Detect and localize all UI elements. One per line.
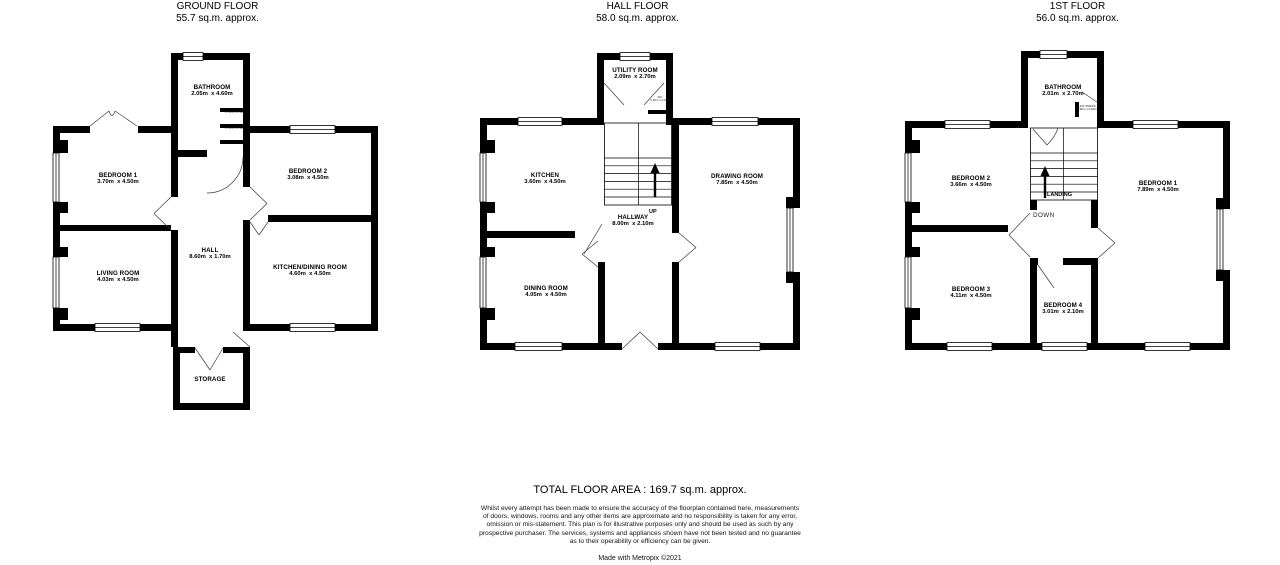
hall-floor-plan: UTILITY ROOM 2.09m x 2.70m KITCHEN 3.60m… xyxy=(465,45,810,365)
room-dims: 4.11m x 4.50m xyxy=(911,293,1031,300)
ground-floor-title-line: GROUND FLOOR xyxy=(45,1,390,13)
room-label-ground-bathroom: BATHROOM 2.05m x 4.60m xyxy=(152,84,272,98)
room-dims: 3.01m x 2.10m xyxy=(1003,309,1123,316)
closet-label-upper: 1.70m x 0.50m xyxy=(215,111,255,114)
room-label-hall-kitchen: KITCHEN 3.60m x 4.50m xyxy=(485,172,605,186)
stairs-up-label: UP xyxy=(649,209,657,215)
ground-walls xyxy=(53,53,378,410)
landing-label: LANDING xyxy=(1047,192,1072,198)
room-dims: 2.01m x 2.70m xyxy=(1003,91,1123,98)
room-name: KITCHEN/DINING ROOM xyxy=(250,264,370,271)
room-label-first-bedroom3: BEDROOM 3 4.11m x 4.50m xyxy=(911,286,1031,300)
room-dims: 4.60m x 4.50m xyxy=(250,271,370,278)
room-dims: 7.85m x 4.50m xyxy=(677,180,797,187)
first-floor-plan: BATHROOM 2.01m x 2.70m BEDROOM 2 3.66m x… xyxy=(895,45,1240,365)
floorplan-page: GROUND FLOOR 55.7 sq.m. approx. HALL FLO… xyxy=(0,0,1280,565)
room-label-hall-drawing: DRAWING ROOM 7.85m x 4.50m xyxy=(677,173,797,187)
room-dims: 2.09m x 2.70m xyxy=(575,74,695,81)
room-dims: 2.05m x 4.60m xyxy=(152,91,272,98)
room-name: BEDROOM 2 xyxy=(248,168,368,175)
room-name: STORAGE xyxy=(150,376,270,383)
room-dims: 3.66m x 4.50m xyxy=(911,182,1031,189)
room-label-first-bedroom4: BEDROOM 4 3.01m x 2.10m xyxy=(1003,302,1123,316)
ground-floor-plan: BATHROOM 2.05m x 4.60m BEDROOM 1 3.70m x… xyxy=(45,45,390,420)
first-staircase xyxy=(1031,128,1098,200)
first-floor-subtitle: 56.0 sq.m. approx. xyxy=(905,13,1250,25)
room-dims: 8.60m x 1.70m xyxy=(150,254,270,261)
room-label-first-bedroom1: BEDROOM 1 7.89m x 4.50m xyxy=(1098,180,1218,194)
disclaimer-text: Whilst every attempt has been made to en… xyxy=(420,505,860,546)
room-label-hall-hallway: HALLWAY 8.00m x 2.10m xyxy=(573,214,693,228)
hot-press-label: HOT PRESS 0.90m x 0.80m xyxy=(1067,105,1107,112)
hot-press-label-dims: 0.90m x 0.80m xyxy=(1067,108,1107,111)
room-name: BATHROOM xyxy=(152,84,272,91)
ground-floor-drawing xyxy=(45,45,390,420)
hall-staircase xyxy=(605,123,672,205)
room-label-first-bathroom: BATHROOM 2.01m x 2.70m xyxy=(1003,84,1123,98)
total-floor-area: TOTAL FLOOR AREA : 169.7 sq.m. approx. xyxy=(0,484,1280,496)
stairs-down-label: DOWN xyxy=(1033,212,1055,219)
room-label-hall-dining: DINING ROOM 4.05m x 4.50m xyxy=(486,285,606,299)
ground-floor-title: GROUND FLOOR 55.7 sq.m. approx. xyxy=(45,1,390,24)
room-dims: 7.89m x 4.50m xyxy=(1098,187,1218,194)
hall-windows xyxy=(480,53,793,351)
room-dims: 3.08m x 4.50m xyxy=(248,175,368,182)
first-floor-title-line: 1ST FLOOR xyxy=(905,1,1250,13)
first-floor-title: 1ST FLOOR 56.0 sq.m. approx. xyxy=(905,1,1250,24)
room-label-ground-storage: STORAGE xyxy=(150,376,270,383)
wc-label-dims: 1.30m x 0.90m xyxy=(640,99,680,102)
room-dims: 4.03m x 4.50m xyxy=(58,277,178,284)
room-name: HALLWAY xyxy=(573,214,693,221)
room-name: BEDROOM 4 xyxy=(1003,302,1123,309)
hall-floor-title: HALL FLOOR 58.0 sq.m. approx. xyxy=(465,1,810,24)
room-name: BEDROOM 2 xyxy=(911,175,1031,182)
room-name: UTILITY ROOM xyxy=(575,67,695,74)
room-label-ground-living: LIVING ROOM 4.03m x 4.50m xyxy=(58,270,178,284)
room-name: DINING ROOM xyxy=(486,285,606,292)
hall-floor-drawing xyxy=(465,45,810,365)
metropix-credit: Made with Metropix ©2021 xyxy=(0,555,1280,562)
room-name: KITCHEN xyxy=(485,172,605,179)
room-name: BEDROOM 3 xyxy=(911,286,1031,293)
room-dims: 3.60m x 4.50m xyxy=(485,179,605,186)
room-label-hall-utility: UTILITY ROOM 2.09m x 2.70m xyxy=(575,67,695,81)
room-label-ground-bedroom2: BEDROOM 2 3.08m x 4.50m xyxy=(248,168,368,182)
room-name: LIVING ROOM xyxy=(58,270,178,277)
room-dims: 4.05m x 4.50m xyxy=(486,292,606,299)
hall-floor-subtitle: 58.0 sq.m. approx. xyxy=(465,13,810,25)
room-label-first-bedroom2: BEDROOM 2 3.66m x 4.50m xyxy=(911,175,1031,189)
room-dims: 3.70m x 4.50m xyxy=(58,179,178,186)
room-label-ground-kitchen-dining: KITCHEN/DINING ROOM 4.60m x 4.50m xyxy=(250,264,370,278)
room-label-ground-hall: HALL 8.60m x 1.70m xyxy=(150,247,270,261)
room-name: BEDROOM 1 xyxy=(1098,180,1218,187)
wc-label: WC 1.30m x 0.90m xyxy=(640,96,680,103)
ground-floor-subtitle: 55.7 sq.m. approx. xyxy=(45,13,390,25)
hall-floor-title-line: HALL FLOOR xyxy=(465,1,810,13)
room-name: DRAWING ROOM xyxy=(677,173,797,180)
closet-label-lower: 1.70m x 0.50m xyxy=(215,127,255,130)
room-dims: 8.00m x 2.10m xyxy=(573,221,693,228)
room-name: BEDROOM 1 xyxy=(58,172,178,179)
room-label-ground-bedroom1: BEDROOM 1 3.70m x 4.50m xyxy=(58,172,178,186)
room-name: BATHROOM xyxy=(1003,84,1123,91)
room-name: HALL xyxy=(150,247,270,254)
